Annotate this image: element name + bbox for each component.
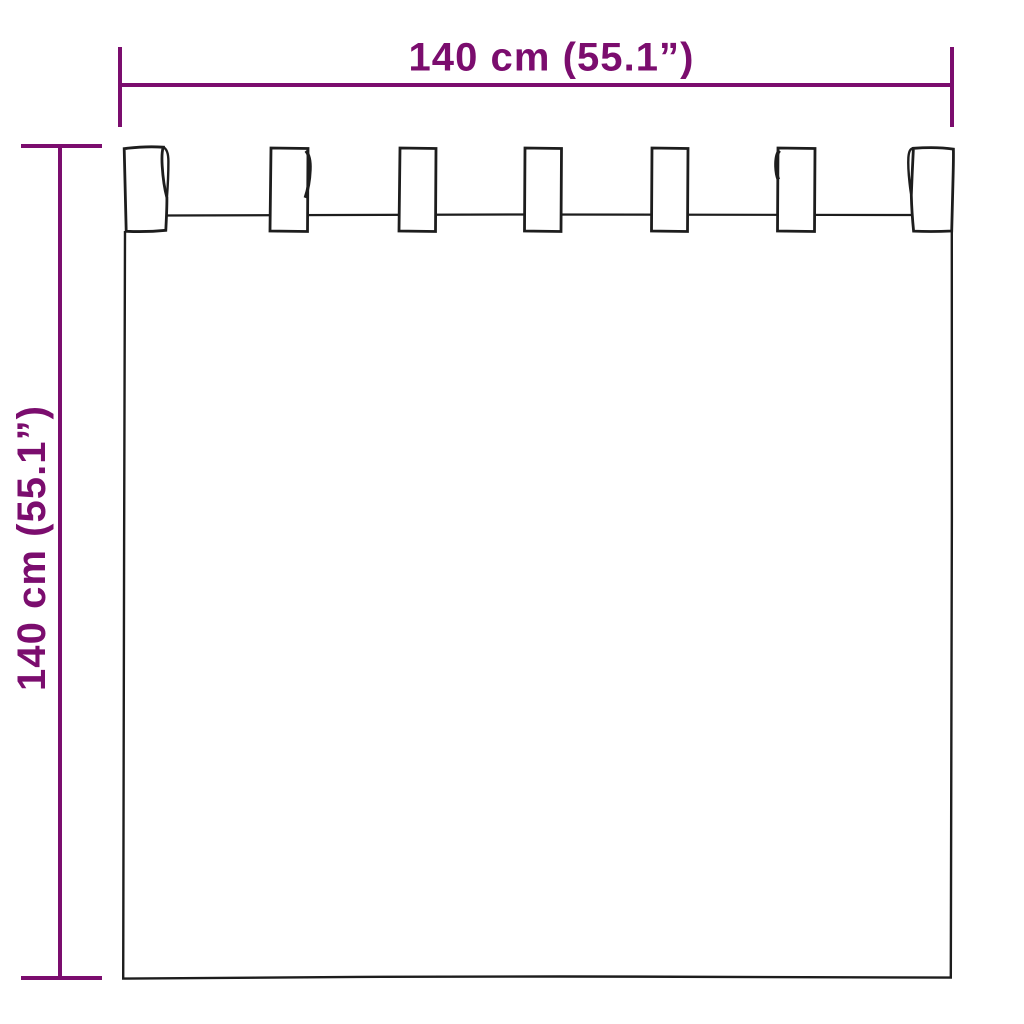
svg-text:140 cm (55.1”): 140 cm (55.1”): [409, 36, 695, 80]
svg-text:140 cm (55.1”): 140 cm (55.1”): [10, 405, 54, 691]
